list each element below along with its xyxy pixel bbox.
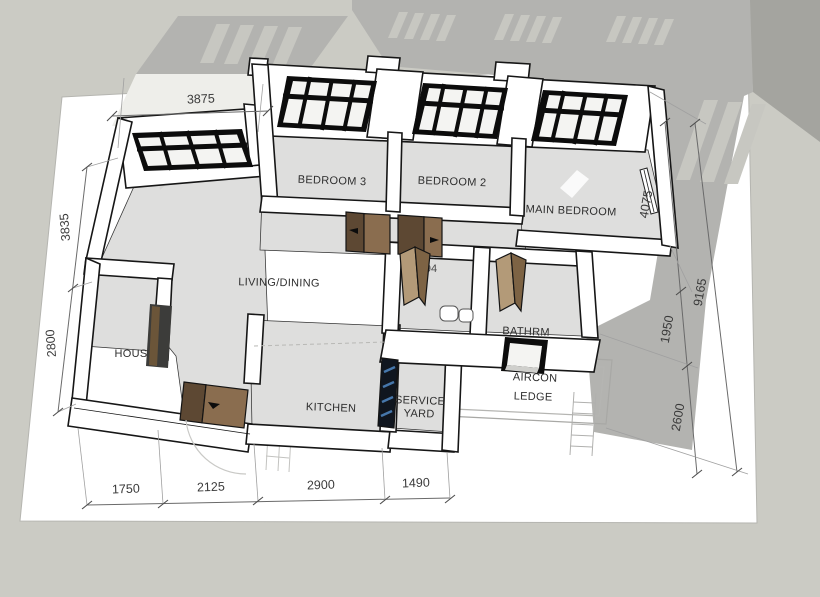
room-label-living-dining: LIVING/DINING: [238, 276, 320, 289]
wall-bath1-west: [382, 242, 402, 334]
window-bathroom: [507, 343, 542, 368]
wc-bath1: [440, 306, 458, 321]
basin-bath1: [459, 309, 473, 322]
room-label-service-yard-2: YARD: [403, 407, 434, 420]
door-bedroom3: [364, 214, 390, 254]
door-entrance: [202, 385, 248, 428]
door-bifold-bath1: [400, 247, 430, 305]
wall-bed3-bed2-divider: [386, 132, 402, 212]
window-bedroom2: [412, 83, 508, 139]
door-louver-service-yard: [378, 358, 398, 428]
wall-bath-divider: [470, 247, 490, 336]
dim-label-bottom-3: 2900: [307, 478, 335, 493]
room-label-kitchen: KITCHEN: [306, 401, 357, 415]
door-louver-service-yard: [378, 358, 398, 428]
floor-bedroom2: [394, 135, 516, 212]
room-label-aircon-2: LEDGE: [514, 390, 553, 403]
window-bathroom: [501, 337, 548, 374]
dim-label-left-upper: 3835: [57, 213, 73, 242]
wall-bed2-main-divider: [510, 138, 526, 216]
dim-label-left-lower: 2800: [43, 329, 59, 358]
dim-label-bottom-1: 1750: [112, 482, 140, 497]
floorplan-canvas: 3 50 00 250 194 2: [0, 0, 820, 597]
room-label-household-shelter: HOUS: [115, 348, 148, 360]
window-bedroom3: [277, 76, 377, 132]
door-bedroom2: [424, 217, 442, 257]
door-bedroom3: [346, 212, 390, 254]
door-entrance: [180, 382, 248, 428]
dim-label-top: 3875: [187, 91, 215, 106]
door-bifold-bath2: [496, 253, 526, 311]
floor-kitchen: [250, 320, 392, 434]
room-label-aircon-1: AIRCON: [513, 371, 558, 385]
window-living: [132, 129, 253, 171]
room-label-bedroom3: BEDROOM 3: [298, 174, 367, 188]
room-label-service-yard-1: SERVICE: [395, 394, 446, 408]
dim-label-bottom-4: 1490: [402, 476, 430, 491]
window-main-bedroom: [531, 90, 628, 146]
room-label-bathroom: BATHRM: [502, 325, 550, 339]
dim-label-bottom-2: 2125: [197, 480, 225, 495]
wall-living-kitchen-stub: [244, 314, 264, 384]
room-label-bedroom2: BEDROOM 2: [418, 175, 487, 189]
floorplan-screenshot: 3 50 00 250 194 2: [0, 0, 820, 597]
